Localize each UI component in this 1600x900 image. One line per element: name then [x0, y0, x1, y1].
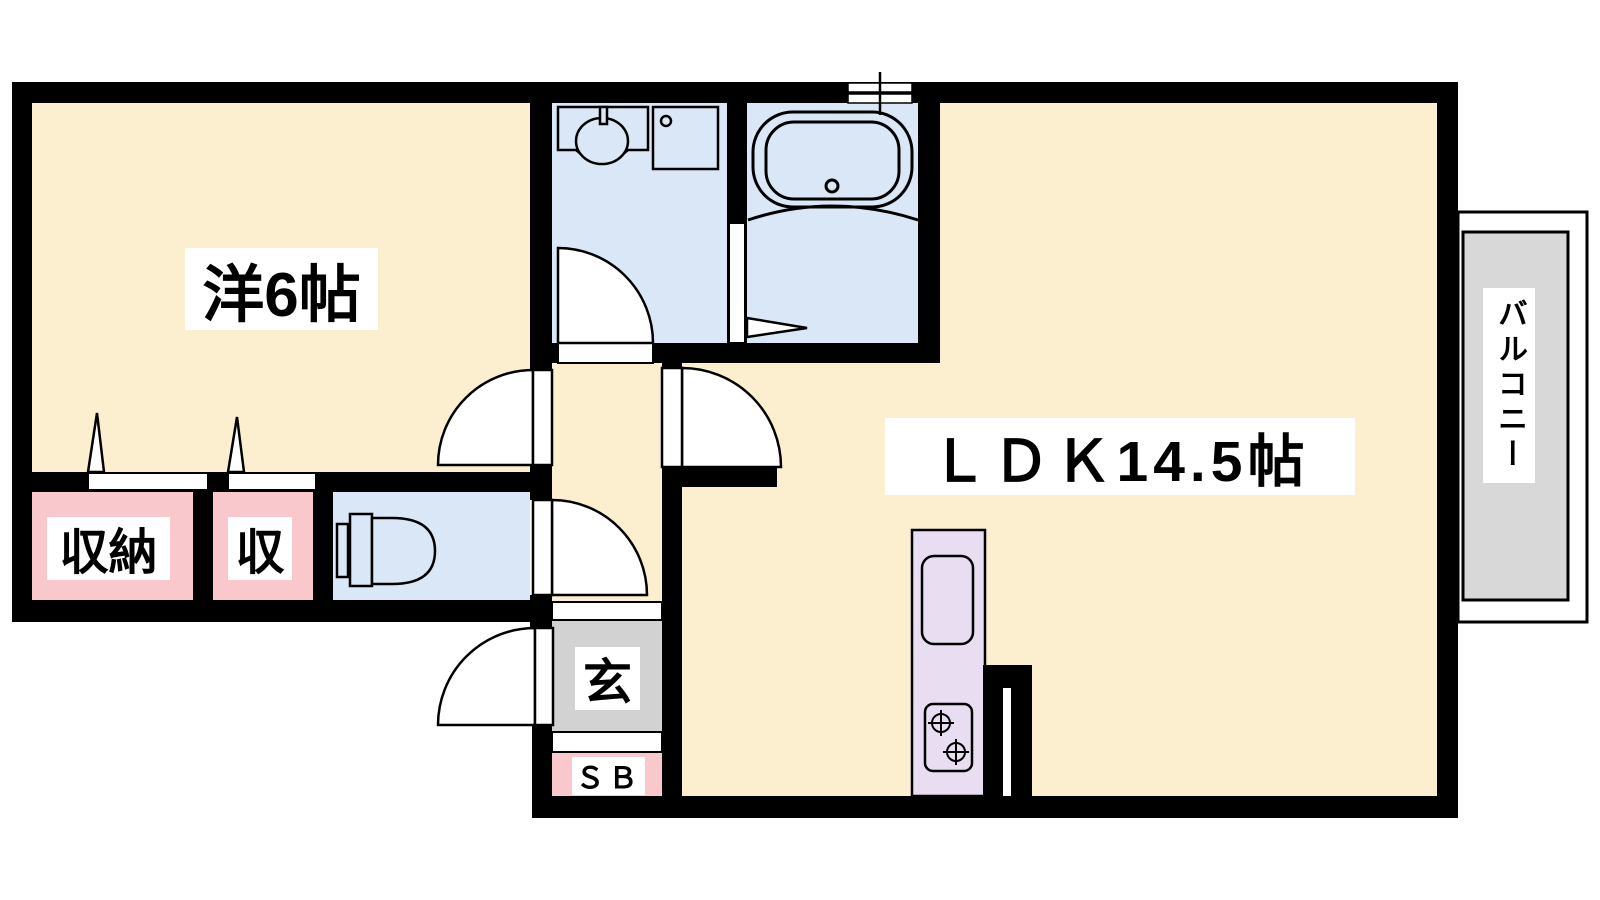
toilet-door-leaf: [533, 500, 552, 595]
kitchen-wall-stub-slit: [1003, 688, 1011, 796]
western-room-door-leaf: [533, 370, 552, 465]
washer-drain-icon: [661, 116, 671, 126]
entrance-label: 玄: [575, 647, 640, 710]
ldk-door-leaf: [662, 368, 682, 467]
kitchen-sink-icon: [922, 556, 973, 644]
floor-plan: 洋6帖 ＬＤＫ14.5帖 収納 収 玄 ＳＢ バルコニー: [0, 0, 1600, 900]
washroom-door-threshold: [558, 343, 653, 363]
balcony-label: バルコニー: [1483, 288, 1535, 483]
closet-small-door-panel: [228, 473, 316, 490]
ldk-label: ＬＤＫ14.5帖: [885, 418, 1355, 495]
vanity-faucet-icon: [600, 107, 607, 124]
bathroom-floor: [747, 103, 918, 343]
entrance-step: [552, 602, 662, 620]
closet-large-door-panel: [88, 473, 208, 490]
shoe-box-label: ＳＢ: [572, 757, 645, 795]
bathroom-sliding-door: [729, 223, 745, 343]
entrance-door-leaf: [535, 628, 553, 725]
kitchen-stove: [925, 704, 972, 771]
closet-small-label: 収: [228, 517, 292, 580]
entrance-door-swing: [438, 628, 535, 725]
closet-large-label: 収納: [47, 517, 170, 580]
toilet-fixture-icon: [337, 514, 435, 586]
floor-plan-drawing: [0, 0, 1600, 900]
western-room-label: 洋6帖: [185, 248, 378, 330]
shoe-box-step: [552, 732, 662, 752]
